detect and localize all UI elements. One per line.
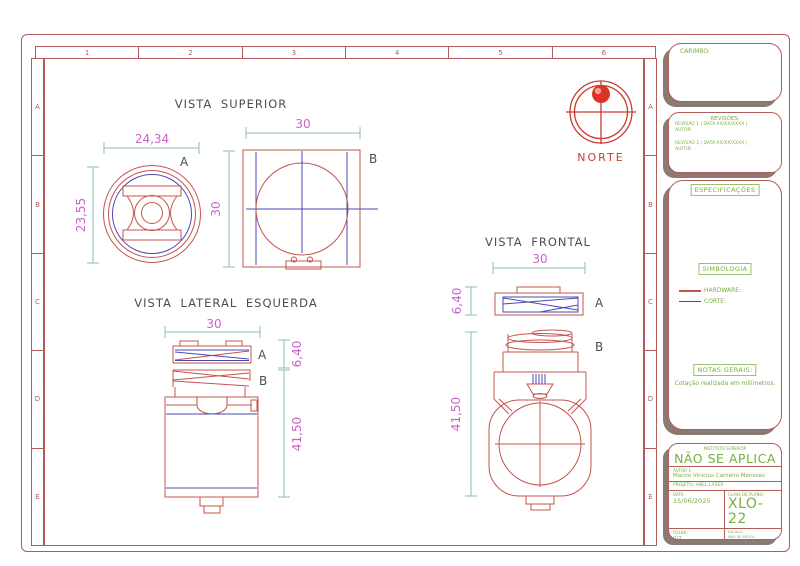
author-name: Marcio Vinicius Carneiro Menezes: [673, 473, 777, 480]
revision-line: AUTOR:: [675, 147, 781, 153]
row-label-b: B: [32, 156, 43, 253]
column-label-6: 6: [553, 47, 655, 58]
date-cell: DATA: 15/06/2025: [669, 491, 724, 528]
hardware-label: HARDWARE:: [704, 287, 741, 294]
sheet-scale-row: FOLHA: 2/2 ESCALA: NÃO SE APLICA COTAÇÃO…: [669, 528, 781, 540]
scale-unit-cell: ESCALA: NÃO SE APLICA COTAÇÃO EM: CENTÍM…: [724, 529, 781, 540]
general-notes-text: Cotação realizada em milímetros.: [669, 380, 781, 387]
plan-key-cell: CLAVE DE PLANO: XLO-22: [724, 491, 781, 528]
corte-label: CORTE:: [704, 298, 726, 305]
specifications-box: ESPECIFICAÇÕES SIMBOLOGIA HARDWARE: CORT…: [668, 180, 782, 430]
sheet-number-value: 2/2: [673, 535, 720, 540]
row-label-c: C: [32, 254, 43, 351]
legend-corte: CORTE:: [679, 298, 726, 305]
row-label-e: E: [645, 449, 656, 545]
column-label-4: 4: [346, 47, 449, 58]
stamp-box: INSTITUTO SUPERIOR NÃO SE APLICA AUTOR 1…: [668, 443, 782, 540]
project-row: PROJETO: ANEL LASER: [669, 481, 781, 490]
column-label-2: 2: [139, 47, 242, 58]
row-label-d: D: [645, 351, 656, 448]
drawing-area-border: [44, 58, 644, 546]
symbology-title: SIMBOLOGIA: [698, 263, 751, 275]
scale-cell: ESCALA: NÃO SE APLICA: [725, 529, 781, 540]
revisions-box: REVISÕES: REVISÃO 1 | DATA:XX/XX/XXXX | …: [668, 112, 782, 173]
column-label-1: 1: [36, 47, 139, 58]
sheet-number-cell: FOLHA: 2/2: [669, 529, 724, 540]
row-label-e: E: [32, 449, 43, 545]
row-label-a: A: [32, 59, 43, 156]
not-applicable-title: NÃO SE APLICA: [669, 451, 781, 466]
plan-key-value: XLO-22: [728, 497, 778, 527]
carimbo-label: CARIMBO:: [680, 48, 710, 55]
revision-line: AUTOR:: [675, 128, 781, 134]
row-ruler-left: A B C D E: [31, 58, 44, 546]
row-label-c: C: [645, 254, 656, 351]
scale-value: NÃO SE APLICA: [728, 535, 778, 540]
carimbo-box: CARIMBO:: [668, 43, 782, 102]
row-ruler-right: A B C D E: [644, 58, 657, 546]
general-notes-title: NOTAS GERAIS:: [693, 364, 756, 376]
hardware-line-swatch: [679, 290, 701, 292]
row-label-b: B: [645, 156, 656, 253]
cad-drawing-sheet: 1 2 3 4 5 6 A B C D E A B C D E VISTA SU…: [0, 0, 800, 566]
specifications-title: ESPECIFICAÇÕES: [691, 184, 760, 196]
date-value: 15/06/2025: [673, 497, 720, 506]
date-plankey-row: DATA: 15/06/2025 CLAVE DE PLANO: XLO-22: [669, 490, 781, 528]
legend-hardware: HARDWARE:: [679, 287, 741, 294]
column-label-5: 5: [449, 47, 552, 58]
author-row: AUTOR 1: Marcio Vinicius Carneiro Meneze…: [669, 466, 781, 481]
column-label-3: 3: [243, 47, 346, 58]
row-label-a: A: [645, 59, 656, 156]
row-label-d: D: [32, 351, 43, 448]
corte-line-swatch: [679, 301, 701, 302]
